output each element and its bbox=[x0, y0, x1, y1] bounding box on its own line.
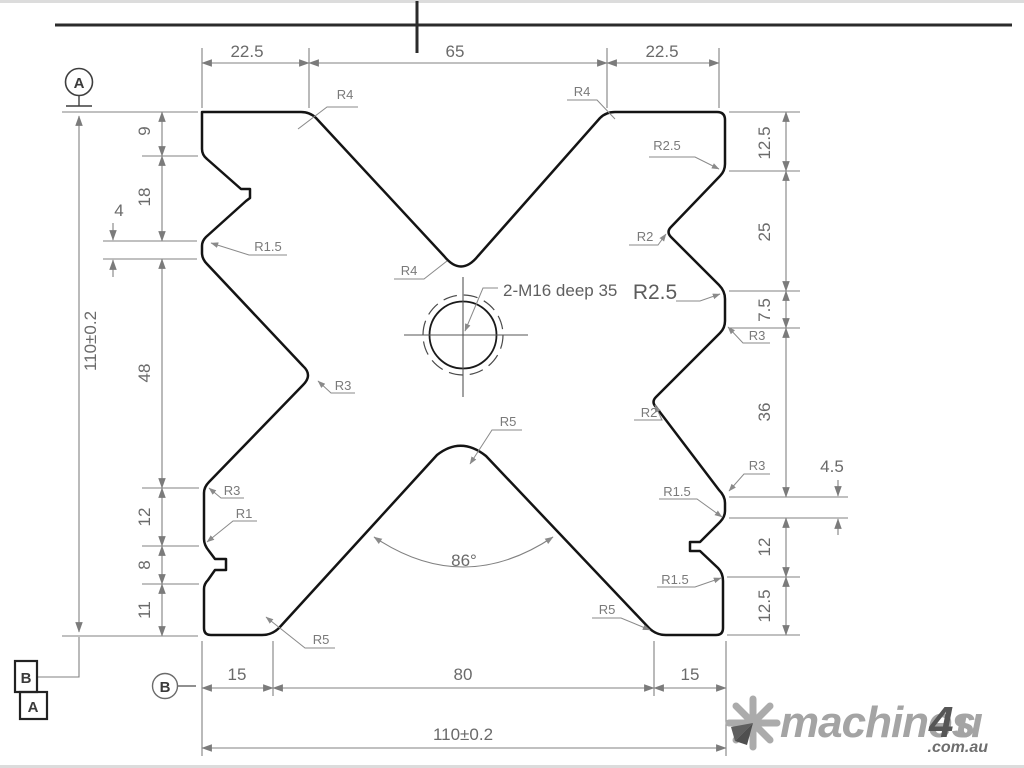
dim-right-7-5: 7.5 bbox=[755, 298, 774, 322]
watermark-domain: .com.au bbox=[928, 739, 989, 756]
dim-right-12-5-bot: 12.5 bbox=[755, 589, 774, 622]
radius-label: R5 bbox=[500, 414, 517, 429]
dim-bottom-15-left: 15 bbox=[228, 665, 247, 684]
sheet-border bbox=[55, 1, 1012, 53]
machines4u-logo-icon bbox=[729, 699, 777, 747]
radius-label: R2 bbox=[637, 229, 654, 244]
bottom-dimensions: 15 80 15 110±0.2 bbox=[202, 641, 726, 756]
radius-label: R4 bbox=[574, 84, 591, 99]
angle-dimension: 86° bbox=[374, 537, 553, 570]
radius-label: R5 bbox=[313, 632, 330, 647]
dim-top-left: 22.5 bbox=[230, 42, 263, 61]
radius-label: R5 bbox=[599, 602, 616, 617]
dim-right-12-5-top: 12.5 bbox=[755, 126, 774, 159]
dim-right-4-5: 4.5 bbox=[820, 457, 844, 476]
cad-drawing-page: 2-M16 deep 35 22.5 65 22.5 9 18 4 bbox=[0, 0, 1024, 768]
dim-right-25: 25 bbox=[755, 223, 774, 242]
dim-left-4: 4 bbox=[114, 201, 123, 220]
radius-label: R2.5 bbox=[633, 281, 677, 304]
dim-left-8: 8 bbox=[135, 560, 154, 569]
radius-label: R2.5 bbox=[653, 138, 680, 153]
right-dimensions: 12.5 25 7.5 36 4.5 12 12.5 bbox=[727, 112, 848, 635]
radius-label: R1.5 bbox=[254, 239, 281, 254]
angle-label: 86° bbox=[451, 551, 477, 570]
datum-box-a: A bbox=[28, 699, 39, 716]
dim-left-11: 11 bbox=[135, 601, 154, 619]
top-letterbox-band bbox=[0, 0, 1024, 3]
radius-label: R4 bbox=[401, 263, 418, 278]
dim-top-right: 22.5 bbox=[645, 42, 678, 61]
engineering-drawing: 2-M16 deep 35 22.5 65 22.5 9 18 4 bbox=[0, 0, 1024, 768]
dim-top-mid: 65 bbox=[446, 42, 465, 61]
datum-a-letter: A bbox=[74, 75, 85, 92]
dim-left-18: 18 bbox=[135, 188, 154, 207]
dim-right-36: 36 bbox=[755, 403, 774, 422]
radius-label: R3 bbox=[224, 483, 241, 498]
radius-label: R3 bbox=[749, 458, 766, 473]
dim-bottom-width: 110±0.2 bbox=[433, 725, 493, 744]
top-dimensions: 22.5 65 22.5 bbox=[202, 42, 719, 108]
radius-label: R4 bbox=[337, 87, 354, 102]
dim-right-12: 12 bbox=[755, 538, 774, 557]
dim-left-48: 48 bbox=[135, 364, 154, 383]
datum-reference-boxes: B A bbox=[15, 637, 79, 719]
dim-left-9: 9 bbox=[135, 126, 154, 135]
datum-b-letter: B bbox=[160, 679, 171, 696]
dim-left-12: 12 bbox=[135, 508, 154, 527]
datum-b-symbol: B bbox=[153, 674, 197, 699]
dim-bottom-15-right: 15 bbox=[681, 665, 700, 684]
radius-label: R3 bbox=[335, 378, 352, 393]
left-dimensions: 9 18 4 110±0.2 48 12 8 11 bbox=[62, 112, 199, 636]
radius-label: R1.5 bbox=[663, 484, 690, 499]
datum-box-b: B bbox=[21, 670, 32, 687]
dim-left-height: 110±0.2 bbox=[81, 311, 100, 371]
hole-callout: 2-M16 deep 35 bbox=[465, 281, 617, 331]
radius-label: R3 bbox=[749, 328, 766, 343]
dim-bottom-80: 80 bbox=[454, 665, 473, 684]
radius-label: R2 bbox=[641, 405, 658, 420]
datum-a-symbol: A bbox=[66, 69, 93, 107]
radius-label: R1 bbox=[236, 506, 253, 521]
radius-label: R1.5 bbox=[661, 572, 688, 587]
machines4u-watermark: machines 4 u .com.au bbox=[729, 698, 988, 756]
hole-note: 2-M16 deep 35 bbox=[503, 281, 617, 300]
